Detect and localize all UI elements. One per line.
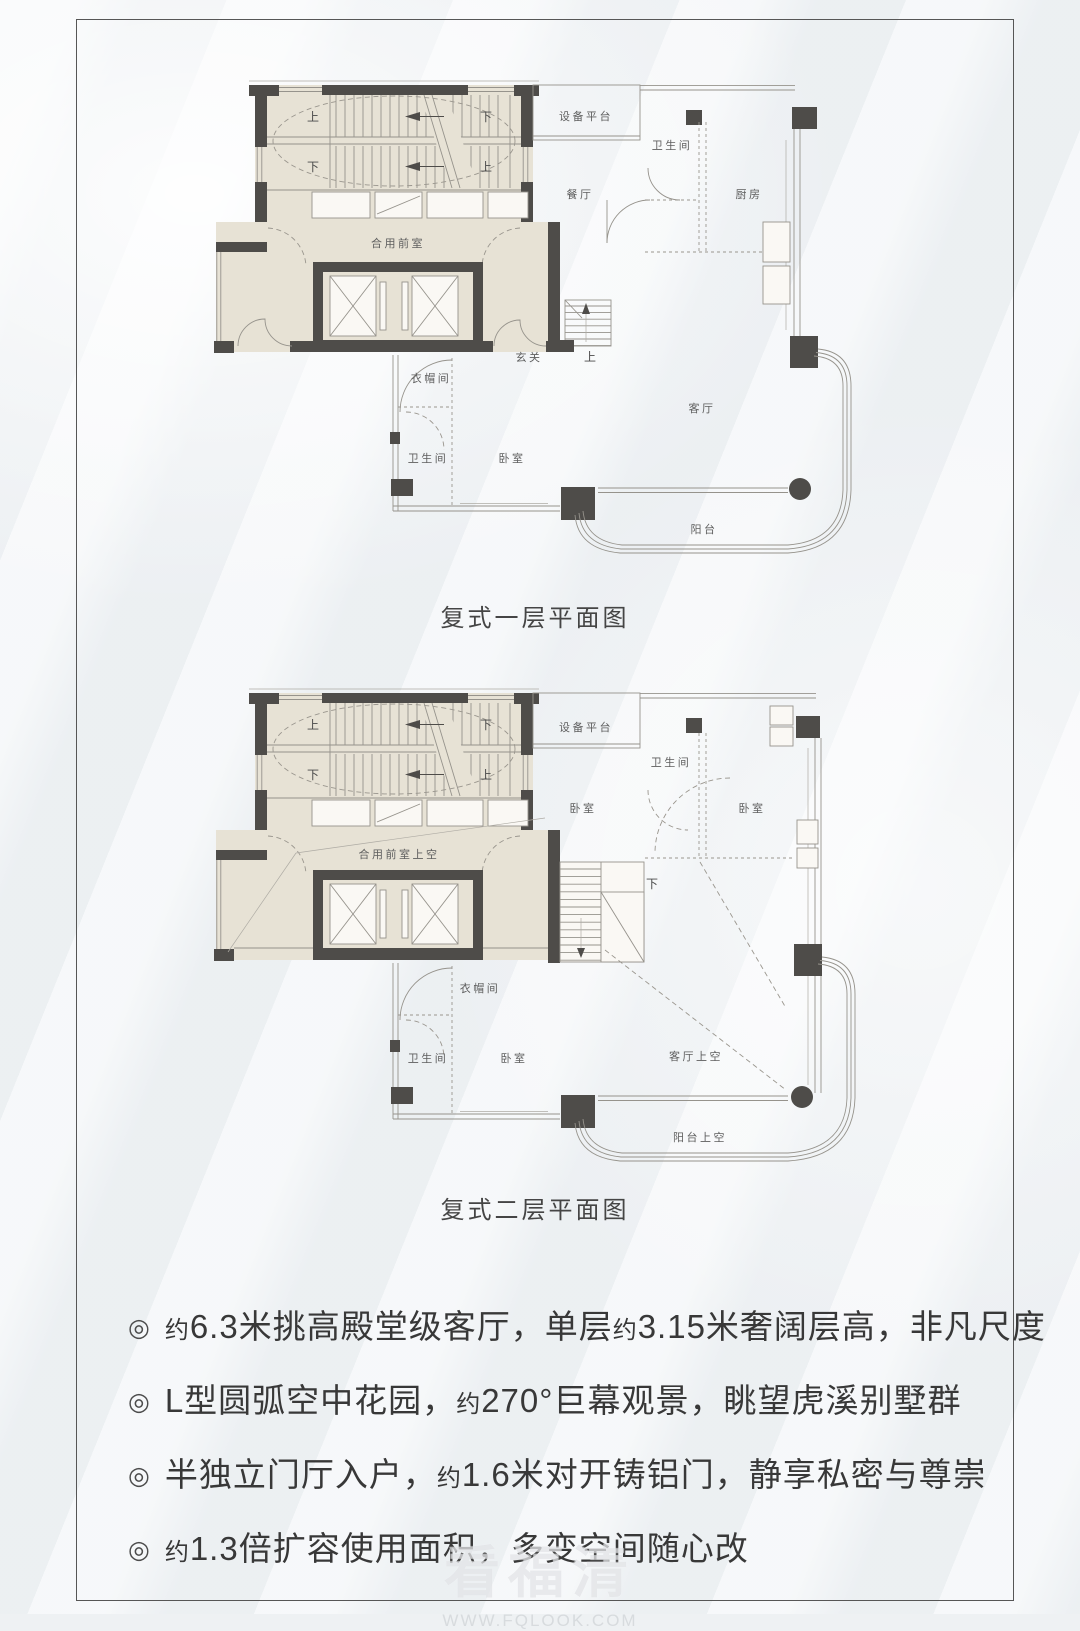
room-label-bedroom-right: 卧室	[739, 801, 766, 815]
bullet-item: ◎约6.3米挑高殿堂级客厅，单层约3.15米奢阔层高，非凡尺度	[128, 1300, 978, 1348]
bullet-marker-icon: ◎	[128, 1313, 150, 1343]
stair-up-br: 上	[480, 160, 492, 174]
elevator-shaft	[412, 276, 458, 336]
room-label-living: 客厅	[689, 401, 716, 415]
room-label-bedroom: 卧室	[499, 451, 526, 465]
floor-plan-level1: 上 下 下 上	[180, 75, 880, 575]
room-label-cloak: 衣帽间	[411, 371, 452, 385]
page-background: 上 下 下 上	[0, 0, 1080, 1614]
room-label-equipment: 设备平台	[559, 109, 613, 123]
bullet-marker-icon: ◎	[128, 1387, 150, 1417]
stair-down-bl: 下	[307, 160, 319, 174]
room-label-bath-lower: 卫生间	[408, 1051, 449, 1065]
bullet-item: ◎半独立门厅入户，约1.6米对开铸铝门，静享私密与尊崇	[128, 1448, 978, 1496]
stair-core: 上 下 下 上	[214, 81, 560, 353]
room-label-bedroom-lower: 卧室	[501, 1051, 528, 1065]
bullets: ◎约6.3米挑高殿堂级客厅，单层约3.15米奢阔层高，非凡尺度◎L型圆弧空中花园…	[128, 1300, 978, 1596]
bullet-item: ◎约1.3倍扩容使用面积，多变空间随心改	[128, 1522, 978, 1570]
stair-up-tl: 上	[307, 110, 319, 124]
room-label-bath-upper: 卫生间	[652, 138, 693, 152]
bullet-marker-icon: ◎	[128, 1461, 150, 1491]
plan1-caption: 复式一层平面图	[75, 598, 995, 633]
bullet-text: 约6.3米挑高殿堂级客厅，单层约3.15米奢阔层高，非凡尺度	[165, 1300, 1046, 1348]
room-label-vestibule: 合用前室	[371, 236, 425, 250]
bullet-text: 约1.3倍扩容使用面积，多变空间随心改	[165, 1522, 749, 1570]
plan2-caption: 复式二层平面图	[75, 1190, 995, 1225]
room-label-balcony: 阳台	[691, 522, 718, 536]
room-label-kitchen: 厨房	[736, 188, 763, 201]
room-label-cloak: 衣帽间	[460, 981, 501, 995]
elevator-shaft	[330, 276, 376, 336]
room-label-bath-upper: 卫生间	[651, 755, 692, 769]
room-label-bath-lower: 卫生间	[408, 451, 449, 465]
floor-plan-level2: 合用前室上空 下 设备平台	[180, 668, 880, 1173]
room-label-living-void: 客厅上空	[669, 1049, 723, 1063]
stair-up-foyer: 上	[584, 350, 596, 364]
room-label-vestibule-void: 合用前室上空	[359, 847, 440, 861]
room-label-foyer: 玄关	[516, 350, 543, 364]
stair-down-tr: 下	[480, 110, 492, 124]
bullet-text: L型圆弧空中花园，约270°巨幕观景，眺望虎溪别墅群	[165, 1374, 962, 1422]
room-label-dining: 餐厅	[567, 187, 594, 201]
watermark-url: WWW.FQLOOK.COM	[0, 1611, 1080, 1631]
bullet-item: ◎L型圆弧空中花园，约270°巨幕观景，眺望虎溪别墅群	[128, 1374, 978, 1422]
room-label-equipment: 设备平台	[559, 720, 613, 734]
room-label-balcony-void: 阳台上空	[673, 1130, 727, 1144]
bullet-marker-icon: ◎	[128, 1535, 150, 1565]
bullet-text: 半独立门厅入户，约1.6米对开铸铝门，静享私密与尊崇	[165, 1448, 987, 1496]
room-label-bedroom-left: 卧室	[570, 801, 597, 815]
stair-down-internal: 下	[646, 877, 658, 891]
